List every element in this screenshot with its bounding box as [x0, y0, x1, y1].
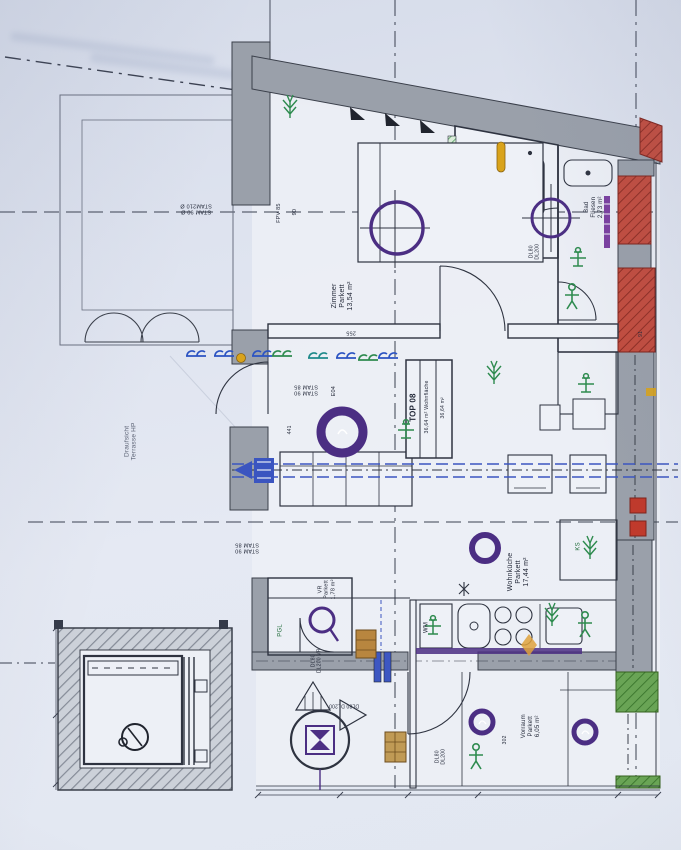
room-name: Bad	[584, 187, 591, 227]
terrace-outline	[60, 95, 233, 345]
gas-pipe-icon	[497, 142, 505, 172]
shaft-box	[385, 732, 406, 762]
floor-plan-svg	[0, 0, 681, 850]
shaft-box	[356, 630, 376, 658]
door-label-entrance: DL80 DL200	[435, 745, 446, 769]
room-area: 2,73 m²	[597, 187, 604, 227]
room-label-vr: VR Parkett 1,78 m²	[318, 569, 337, 609]
room-name: Vorraum	[521, 699, 528, 753]
room-label-vorraum: Vorraum Parkett 6,05 m²	[521, 699, 541, 753]
room-floor: Parkett	[515, 542, 523, 602]
terrace-label: Draufsicht Terrasse HP	[124, 410, 139, 472]
frame-label-stam-b: STAM 90 STAM 85	[281, 383, 331, 396]
room-area: 1,78 m²	[330, 569, 336, 609]
unit-area: 36,64 m² Wohnfläche	[425, 377, 431, 437]
room-label-bad: Bad Fliesen 2,73 m²	[584, 187, 604, 227]
dim-255: 255	[338, 329, 364, 335]
frame-label-stam-c: STAM 90 STAM 85	[221, 541, 273, 554]
room-area: 13,54 m²	[347, 262, 355, 330]
pgl-label: PGL	[278, 620, 285, 640]
unit-area2: 36,64 m²	[441, 393, 447, 423]
washing-machine-label: WM	[424, 617, 431, 637]
room-floor: Fliesen	[591, 187, 598, 227]
key-switch-icon	[237, 354, 246, 363]
door-label-vr: DL80 DL200 VR	[311, 646, 322, 676]
door-label-wc: DL80 DL200	[529, 240, 540, 264]
room-floor: Parkett	[339, 262, 347, 330]
oven-icon	[458, 604, 490, 648]
dim-91: 91	[639, 324, 645, 344]
room-area: 17,44 m²	[523, 542, 531, 602]
room-area: 6,05 m²	[534, 699, 541, 753]
dim-90: 90	[292, 202, 298, 222]
dim-302: 302	[503, 730, 509, 750]
frame-label-fpv: FPV 85	[276, 198, 282, 228]
room-name: Wohnküche	[507, 542, 515, 602]
room-name: Zimmer	[331, 262, 339, 330]
elevator	[54, 620, 232, 790]
terrace-line2: Terrasse HP	[131, 410, 138, 472]
counter-edge	[416, 648, 582, 654]
frame-label-e04: E04	[331, 381, 337, 401]
frame-label-stam-a: STAM 90 Ø STAM210 Ø	[169, 202, 223, 215]
unit-id: TOP 08	[408, 385, 417, 431]
room-label-wohnkueche: Wohnküche Parkett 17,44 m²	[507, 542, 531, 602]
dim-441: 441	[288, 420, 294, 440]
room-floor: Parkett	[528, 699, 535, 753]
bed	[358, 143, 543, 262]
terrace-line1: Draufsicht	[124, 410, 131, 472]
room-label-zimmer: Zimmer Parkett 13,54 m²	[331, 262, 355, 330]
floor-plan-photo: Zimmer Parkett 13,54 m² Bad Fliesen 2,73…	[0, 0, 681, 850]
table	[508, 455, 552, 493]
door-label-entrance2: DL80 DL200	[324, 702, 364, 708]
fridge-label: KS	[576, 536, 583, 556]
